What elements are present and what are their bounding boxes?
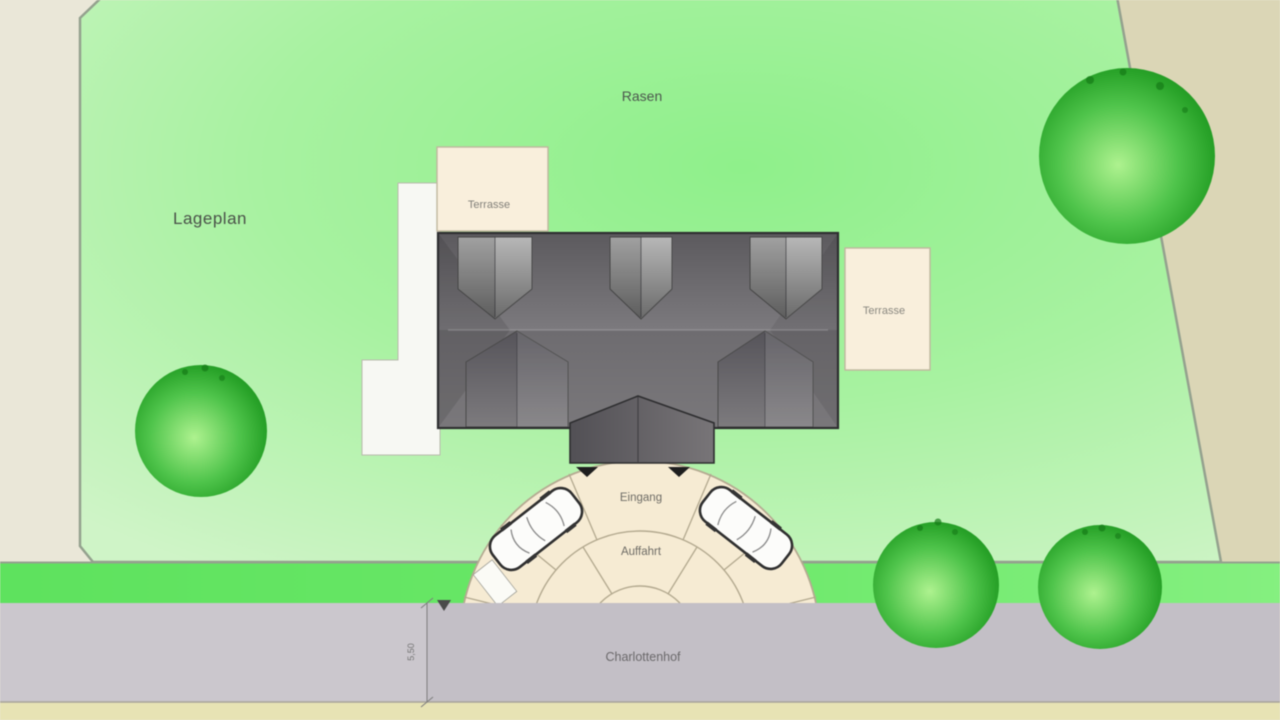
street-width-label: 5,50 (406, 643, 416, 661)
street-left-section (0, 603, 427, 702)
house (438, 233, 838, 463)
driveway-label: Auffahrt (621, 546, 662, 558)
terrace-right-label: Terrasse (863, 305, 905, 317)
site-plan: 5,50 Lageplan Rasen Terrasse Terrasse Ei… (0, 0, 1280, 720)
tree (1039, 68, 1215, 244)
entrance-label: Eingang (620, 492, 662, 504)
terrace-top-label: Terrasse (468, 199, 510, 211)
tree (1038, 525, 1162, 650)
tree (135, 365, 267, 498)
site-plan-canvas: 5,50 Lageplan Rasen Terrasse Terrasse Ei… (0, 0, 1280, 720)
terrace-top (437, 147, 548, 231)
lawn-label: Rasen (622, 88, 662, 104)
street-name-label: Charlottenhof (605, 650, 681, 664)
sidewalk-bottom-strip (0, 702, 1280, 720)
plan-title: Lageplan (173, 209, 247, 228)
